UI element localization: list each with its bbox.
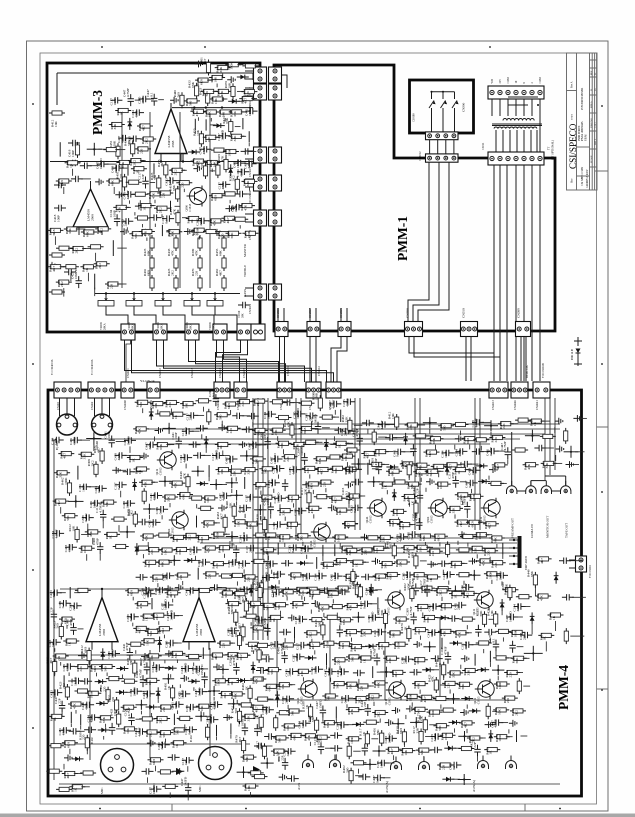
svg-text:560: 560 — [438, 725, 442, 730]
svg-text:6K8: 6K8 — [303, 427, 307, 433]
svg-text:47MF: 47MF — [66, 663, 70, 671]
svg-text:47K: 47K — [388, 657, 392, 663]
svg-text:470P: 470P — [234, 205, 238, 212]
svg-text:6K8: 6K8 — [200, 536, 204, 542]
svg-text:10MFD: 10MFD — [152, 783, 156, 794]
svg-text:220: 220 — [259, 516, 263, 521]
svg-text:1K: 1K — [272, 618, 276, 623]
svg-text:0.1: 0.1 — [375, 778, 379, 783]
svg-text:6K8: 6K8 — [310, 483, 314, 489]
svg-text:100K: 100K — [406, 583, 410, 591]
svg-text:CN4011: CN4011 — [126, 368, 130, 378]
svg-text:6K8: 6K8 — [66, 742, 70, 748]
svg-text:68K: 68K — [102, 716, 106, 722]
svg-text:68K: 68K — [376, 682, 380, 688]
svg-text:220: 220 — [285, 645, 289, 650]
svg-text:CN4012: CN4012 — [158, 368, 162, 378]
svg-text:0.1: 0.1 — [159, 510, 163, 515]
svg-text:47K: 47K — [170, 250, 174, 256]
svg-text:4.7MF: 4.7MF — [399, 532, 403, 541]
svg-text:MIC: MIC — [198, 785, 202, 792]
svg-text:560: 560 — [222, 112, 226, 117]
svg-text:22P: 22P — [49, 607, 53, 612]
svg-text:1MFD: 1MFD — [339, 667, 343, 677]
svg-text:6K8: 6K8 — [429, 470, 433, 476]
svg-text:100K: 100K — [221, 545, 225, 553]
svg-text:1K: 1K — [453, 594, 457, 599]
svg-text:68K: 68K — [515, 657, 519, 663]
svg-text:68K: 68K — [417, 682, 421, 688]
svg-text:10K: 10K — [126, 728, 130, 734]
svg-text:C1815: C1815 — [368, 515, 372, 523]
svg-text:560: 560 — [392, 633, 396, 638]
svg-text:4K7: 4K7 — [244, 97, 248, 103]
svg-text:1K: 1K — [429, 577, 433, 582]
svg-text:22P: 22P — [281, 756, 285, 761]
svg-text:47K: 47K — [143, 230, 147, 236]
svg-text:1MFD: 1MFD — [236, 159, 240, 169]
svg-text:1 OF 1: 1 OF 1 — [595, 122, 597, 128]
svg-text:1K: 1K — [145, 616, 149, 621]
svg-text:68K: 68K — [111, 180, 115, 186]
svg-text:33K: 33K — [166, 496, 170, 502]
svg-text:0.1: 0.1 — [165, 219, 169, 224]
svg-text:10K: 10K — [154, 402, 158, 408]
svg-text:68K: 68K — [121, 161, 125, 167]
svg-text:C1815: C1815 — [387, 697, 391, 705]
svg-text:2K2: 2K2 — [514, 710, 518, 716]
svg-text:47K: 47K — [194, 250, 198, 256]
svg-text:47K: 47K — [212, 220, 216, 226]
svg-text:560: 560 — [270, 669, 274, 674]
svg-text:CN4013: CN4013 — [190, 368, 194, 378]
svg-text:47K: 47K — [182, 472, 186, 478]
svg-text:470P: 470P — [69, 619, 73, 626]
svg-text:1K: 1K — [68, 641, 72, 646]
svg-text:470P: 470P — [276, 572, 280, 579]
svg-text:100K: 100K — [478, 532, 482, 540]
svg-text:10K: 10K — [286, 725, 290, 731]
svg-text:4.7MF: 4.7MF — [503, 441, 507, 450]
svg-text:1K: 1K — [384, 484, 388, 489]
svg-text:B 460: B 460 — [91, 737, 94, 744]
svg-text:C1815: C1815 — [312, 539, 316, 547]
svg-text:1K: 1K — [338, 444, 342, 449]
svg-text:33K: 33K — [363, 630, 367, 636]
svg-text:2K2: 2K2 — [223, 692, 227, 698]
svg-text:220: 220 — [286, 456, 290, 461]
svg-text:220: 220 — [487, 550, 491, 555]
svg-text:560: 560 — [327, 696, 331, 701]
svg-text:CN305: CN305 — [339, 308, 343, 318]
svg-text:B 462: B 462 — [190, 735, 193, 742]
svg-text:22P: 22P — [275, 468, 279, 473]
svg-text:220: 220 — [506, 698, 510, 703]
svg-text:2K2: 2K2 — [256, 400, 260, 406]
svg-text:10K: 10K — [255, 627, 259, 633]
svg-text:47K: 47K — [431, 676, 435, 682]
svg-text:6K8: 6K8 — [436, 535, 440, 541]
svg-text:AUX(A): AUX(A) — [385, 781, 389, 793]
svg-text:220: 220 — [82, 734, 86, 739]
svg-text:47K: 47K — [118, 206, 122, 212]
svg-text:6K8: 6K8 — [93, 666, 97, 672]
svg-text:220: 220 — [150, 549, 154, 554]
svg-text:4.7MF: 4.7MF — [464, 583, 468, 592]
svg-text:68K: 68K — [146, 250, 150, 256]
svg-text:6K8: 6K8 — [377, 575, 381, 581]
svg-text:0.1: 0.1 — [343, 699, 347, 704]
svg-text:470P: 470P — [264, 708, 268, 715]
svg-text:560: 560 — [418, 471, 422, 476]
svg-text:TREBLE: TREBLE — [243, 265, 247, 277]
svg-text:TO CN201B: TO CN201B — [541, 363, 545, 378]
svg-text:47MF: 47MF — [346, 398, 350, 406]
svg-text:22P: 22P — [51, 642, 55, 647]
svg-text:47K: 47K — [285, 590, 289, 596]
svg-text:560: 560 — [338, 560, 342, 565]
svg-text:CSI SPECO SJN: CSI SPECO SJN — [581, 167, 584, 186]
svg-text:47K: 47K — [139, 602, 143, 608]
svg-text:4.7MF: 4.7MF — [291, 465, 295, 474]
svg-text:68K: 68K — [191, 81, 195, 87]
svg-text:22P: 22P — [285, 698, 289, 703]
svg-text:47MF: 47MF — [129, 613, 133, 621]
svg-text:10K: 10K — [214, 98, 218, 104]
svg-text:68K: 68K — [380, 609, 384, 615]
svg-text:2K2: 2K2 — [459, 521, 463, 527]
svg-text:47K: 47K — [255, 678, 259, 684]
svg-text:10MFD: 10MFD — [313, 414, 317, 425]
svg-text:4K7: 4K7 — [366, 452, 370, 458]
svg-text:1K: 1K — [403, 626, 407, 631]
svg-text:47K: 47K — [286, 421, 290, 427]
svg-text:10K: 10K — [113, 710, 117, 716]
svg-text:560: 560 — [254, 459, 258, 464]
svg-text:6K8: 6K8 — [399, 728, 403, 734]
svg-text:4K7: 4K7 — [449, 464, 453, 470]
svg-text:47K: 47K — [145, 535, 149, 541]
svg-text:1K: 1K — [138, 469, 142, 474]
svg-text:47K: 47K — [195, 110, 199, 116]
svg-text:47K: 47K — [72, 703, 76, 709]
svg-text:33K: 33K — [398, 561, 402, 567]
svg-text:47K: 47K — [442, 630, 446, 636]
svg-text:1MFD: 1MFD — [498, 571, 502, 581]
svg-text:10K: 10K — [54, 121, 58, 127]
svg-text:100K: 100K — [196, 227, 200, 235]
svg-text:CN401: CN401 — [56, 401, 60, 410]
svg-text:2K2: 2K2 — [155, 614, 159, 620]
svg-text:4.7MF: 4.7MF — [127, 707, 131, 716]
svg-text:100K: 100K — [90, 690, 94, 698]
svg-text:4.7MF: 4.7MF — [251, 441, 255, 450]
svg-text:TAPE OUT: TAPE OUT — [565, 523, 569, 538]
svg-text:1K: 1K — [85, 267, 89, 272]
svg-text:100P: 100P — [379, 761, 383, 768]
svg-text:470P: 470P — [374, 458, 378, 465]
svg-text:47MF: 47MF — [372, 648, 376, 656]
svg-text:10K: 10K — [490, 610, 494, 616]
svg-text:4.7MF: 4.7MF — [489, 447, 493, 456]
svg-text:470P: 470P — [52, 591, 56, 598]
svg-text:22P: 22P — [141, 174, 145, 179]
svg-text:10K: 10K — [227, 82, 231, 88]
svg-text:470P: 470P — [117, 453, 121, 460]
svg-text:33K: 33K — [311, 716, 315, 722]
svg-text:4.7MF: 4.7MF — [138, 669, 142, 678]
svg-text:220: 220 — [306, 468, 310, 473]
svg-text:10K: 10K — [325, 563, 329, 569]
svg-text:560: 560 — [384, 563, 388, 568]
svg-text:68K: 68K — [326, 721, 330, 727]
svg-text:470P: 470P — [141, 97, 145, 104]
svg-text:68K: 68K — [249, 523, 253, 529]
svg-text:22P: 22P — [457, 605, 461, 610]
svg-text:PMM-1: PMM-1 — [395, 216, 410, 261]
svg-text:100P: 100P — [230, 560, 234, 567]
svg-text:1K: 1K — [348, 450, 352, 455]
svg-text:100K: 100K — [215, 531, 219, 539]
svg-text:100K: 100K — [112, 140, 116, 148]
svg-text:2K2: 2K2 — [170, 270, 174, 276]
svg-text:DIR 14 B: DIR 14 B — [571, 349, 574, 360]
svg-text:68K: 68K — [208, 111, 212, 117]
svg-text:0.1: 0.1 — [168, 643, 172, 648]
svg-text:AUX(A): AUX(A) — [472, 780, 476, 792]
svg-text:10K: 10K — [206, 497, 210, 503]
svg-text:6K8: 6K8 — [147, 561, 151, 567]
svg-text:CN308: CN308 — [406, 308, 410, 318]
svg-text:1K: 1K — [131, 458, 135, 463]
svg-text:C1815: C1815 — [158, 467, 162, 475]
svg-text:47K: 47K — [482, 560, 486, 566]
svg-text:4K7: 4K7 — [169, 592, 173, 598]
svg-text:4.7MF: 4.7MF — [138, 727, 142, 736]
svg-text:10K: 10K — [148, 679, 152, 685]
svg-text:1MFD: 1MFD — [192, 545, 196, 555]
svg-text:2968: 2968 — [199, 629, 203, 636]
svg-text:100K: 100K — [325, 640, 329, 648]
svg-text:6K8: 6K8 — [146, 270, 150, 276]
svg-text:560: 560 — [149, 631, 153, 636]
svg-text:4K7: 4K7 — [49, 657, 53, 663]
svg-text:10K: 10K — [164, 549, 168, 555]
svg-text:4.7MF: 4.7MF — [409, 606, 413, 615]
svg-text:47K: 47K — [243, 204, 247, 210]
svg-text:33K: 33K — [224, 592, 228, 598]
svg-text:0.1: 0.1 — [410, 535, 414, 540]
svg-text:10K: 10K — [196, 129, 200, 135]
svg-text:10MFD: 10MFD — [509, 611, 513, 622]
svg-text:2K2: 2K2 — [370, 695, 374, 701]
svg-text:4K7: 4K7 — [333, 497, 337, 503]
svg-text:4.7MF: 4.7MF — [415, 512, 419, 521]
svg-text:2K2: 2K2 — [132, 159, 136, 165]
svg-text:47K: 47K — [274, 429, 278, 435]
svg-text:10K: 10K — [247, 785, 251, 791]
svg-text:100K: 100K — [350, 736, 354, 744]
svg-text:33K: 33K — [467, 669, 471, 675]
svg-text:560: 560 — [153, 175, 157, 180]
svg-text:1K: 1K — [410, 500, 414, 505]
svg-text:68K: 68K — [334, 467, 338, 473]
svg-text:C1815: C1815 — [170, 527, 174, 535]
svg-text:10MFD: 10MFD — [371, 611, 375, 622]
svg-text:10K: 10K — [207, 136, 211, 142]
svg-text:47MF: 47MF — [464, 641, 468, 649]
svg-text:2968: 2968 — [91, 214, 95, 221]
svg-text:4K7: 4K7 — [141, 125, 145, 131]
svg-text:39K: 39K — [242, 313, 245, 318]
svg-text:20KA: 20KA — [132, 323, 135, 330]
svg-text:220: 220 — [229, 428, 233, 433]
svg-text:47MF: 47MF — [232, 657, 236, 665]
svg-text:TT: TT — [548, 146, 551, 150]
svg-text:1K: 1K — [457, 470, 461, 475]
svg-text:100K: 100K — [488, 571, 492, 579]
svg-text:100K: 100K — [472, 493, 476, 501]
svg-text:2K2: 2K2 — [188, 534, 192, 540]
svg-text:2K2: 2K2 — [90, 460, 94, 466]
svg-text:47MF: 47MF — [339, 721, 343, 729]
svg-text:6K8: 6K8 — [391, 520, 395, 526]
svg-text:4K7: 4K7 — [214, 654, 218, 660]
svg-text:22P: 22P — [404, 659, 408, 664]
svg-text:47K: 47K — [310, 507, 314, 513]
svg-text:220: 220 — [215, 563, 219, 568]
svg-text:33K: 33K — [89, 531, 93, 537]
svg-text:220: 220 — [442, 765, 446, 770]
svg-text:4K7: 4K7 — [423, 696, 427, 702]
svg-text:10MFD: 10MFD — [200, 664, 204, 675]
svg-text:1MFD: 1MFD — [270, 478, 274, 488]
svg-text:22P: 22P — [473, 742, 477, 747]
svg-text:1K: 1K — [53, 717, 57, 722]
svg-text:1MFD: 1MFD — [318, 699, 322, 709]
svg-text:4K7: 4K7 — [138, 627, 142, 633]
svg-text:220: 220 — [375, 548, 379, 553]
svg-text:CN4013: CN4013 — [491, 400, 495, 410]
svg-text:1MFD: 1MFD — [184, 776, 188, 786]
svg-text:100K: 100K — [514, 629, 518, 637]
svg-text:10MFD: 10MFD — [296, 408, 300, 419]
svg-text:220: 220 — [301, 590, 305, 595]
svg-text:560: 560 — [176, 730, 180, 735]
svg-text:6K8: 6K8 — [60, 180, 64, 186]
svg-text:DWG NO: DWG NO — [590, 118, 593, 128]
svg-text:1K: 1K — [257, 485, 261, 490]
svg-text:47MF: 47MF — [433, 733, 437, 741]
svg-text:68K: 68K — [422, 535, 426, 541]
svg-text:560: 560 — [205, 91, 209, 96]
svg-text:6K8: 6K8 — [130, 590, 134, 596]
svg-text:220: 220 — [179, 575, 183, 580]
svg-text:REV: REV — [591, 70, 593, 75]
svg-text:2K2: 2K2 — [377, 711, 381, 717]
svg-text:4K7: 4K7 — [540, 558, 544, 564]
svg-text:68K: 68K — [159, 443, 163, 449]
svg-text:POWERED MIXER: POWERED MIXER — [581, 87, 584, 110]
svg-text:220: 220 — [322, 482, 326, 487]
svg-text:10MFD: 10MFD — [264, 571, 268, 582]
svg-text:1K: 1K — [267, 535, 271, 540]
svg-text:470P: 470P — [148, 443, 152, 450]
svg-text:33K: 33K — [545, 462, 549, 468]
svg-text:10MFD: 10MFD — [169, 609, 173, 620]
svg-text:47MF: 47MF — [154, 664, 158, 672]
svg-text:47K: 47K — [220, 90, 224, 96]
svg-text:0.1: 0.1 — [117, 485, 121, 490]
svg-text:1K: 1K — [245, 686, 249, 691]
svg-text:100P: 100P — [113, 98, 117, 105]
svg-text:22P: 22P — [188, 590, 192, 595]
svg-text:560: 560 — [277, 604, 281, 609]
svg-text:1K: 1K — [543, 636, 547, 641]
svg-text:1MFD: 1MFD — [132, 687, 136, 697]
svg-text:4.7MF: 4.7MF — [332, 400, 336, 409]
svg-text:100P: 100P — [316, 738, 320, 745]
svg-text:100P: 100P — [444, 451, 448, 458]
svg-text:47K: 47K — [172, 208, 176, 214]
svg-text:100P: 100P — [165, 574, 169, 581]
svg-text:4.7MF: 4.7MF — [280, 645, 284, 654]
svg-text:BASS: BASS — [243, 289, 247, 297]
svg-text:10K: 10K — [330, 592, 334, 598]
svg-text:560: 560 — [234, 708, 238, 713]
svg-text:68K: 68K — [398, 618, 402, 624]
svg-text:220: 220 — [336, 659, 340, 664]
svg-text:47MF: 47MF — [377, 628, 381, 636]
svg-text:10MFD: 10MFD — [276, 492, 280, 503]
svg-text:1MFD: 1MFD — [333, 572, 337, 582]
svg-text:68K: 68K — [85, 231, 89, 237]
svg-text:100K: 100K — [230, 62, 234, 70]
svg-text:47MF: 47MF — [494, 719, 498, 727]
svg-text:6K8: 6K8 — [389, 573, 393, 579]
svg-text:68K: 68K — [426, 616, 430, 622]
svg-text:22P: 22P — [249, 548, 253, 553]
svg-text:0.1: 0.1 — [353, 508, 357, 513]
svg-text:560: 560 — [188, 101, 192, 106]
svg-text:4.7MF: 4.7MF — [222, 492, 226, 501]
svg-text:C4RMPOA KSW: C4RMPOA KSW — [586, 169, 589, 188]
svg-text:2968: 2968 — [102, 629, 106, 636]
svg-text:6K8: 6K8 — [200, 79, 204, 85]
svg-text:1K: 1K — [74, 787, 78, 792]
svg-text:1MFD: 1MFD — [84, 513, 88, 523]
svg-text:Y2-CN-14: Y2-CN-14 — [140, 379, 155, 383]
svg-text:1MFD: 1MFD — [181, 689, 185, 699]
svg-text:2K2: 2K2 — [158, 207, 162, 213]
svg-text:22P: 22P — [184, 760, 188, 765]
svg-text:100K: 100K — [337, 534, 341, 542]
svg-text:2K2: 2K2 — [130, 510, 134, 516]
svg-text:220: 220 — [162, 193, 166, 198]
svg-text:220: 220 — [359, 686, 363, 691]
svg-text:SIZE A: SIZE A — [590, 101, 593, 108]
svg-text:560: 560 — [176, 92, 180, 97]
svg-text:1MFD: 1MFD — [184, 427, 188, 437]
svg-text:2K2: 2K2 — [100, 228, 104, 234]
svg-text:MIC: MIC — [100, 787, 104, 794]
svg-text:47MF: 47MF — [145, 690, 149, 698]
svg-text:100K: 100K — [315, 392, 319, 400]
svg-text:470P: 470P — [153, 493, 157, 500]
svg-text:2K2: 2K2 — [62, 683, 66, 689]
svg-text:560: 560 — [56, 623, 60, 628]
svg-text:47MF: 47MF — [368, 587, 372, 595]
